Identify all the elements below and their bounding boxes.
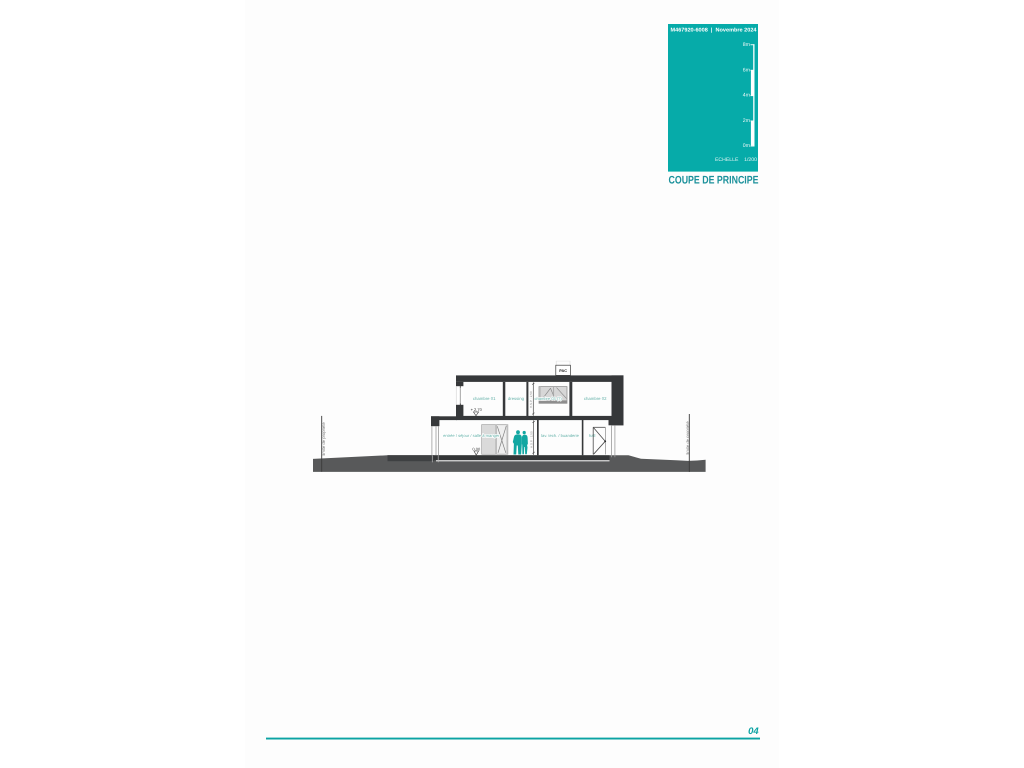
svg-text:2m: 2m (743, 118, 750, 124)
svg-text:entrée / séjour / salle à mang: entrée / séjour / salle à manger (443, 433, 500, 438)
svg-text:limite de propriété: limite de propriété (685, 421, 690, 455)
svg-text:4m: 4m (743, 93, 750, 99)
svg-text:04: 04 (748, 726, 759, 737)
svg-text:+ 2,70: + 2,70 (471, 407, 483, 412)
svg-text:PAC: PAC (559, 369, 567, 373)
svg-text:H.S.P. : 2,50: H.S.P. : 2,50 (529, 391, 533, 408)
svg-text:ECHELLE 1/200: ECHELLE 1/200 (715, 157, 757, 163)
svg-text:chambre 03 (?): chambre 03 (?) (535, 396, 563, 401)
svg-text:lav. tech. / buanderie: lav. tech. / buanderie (541, 433, 579, 438)
svg-text:8m: 8m (743, 42, 750, 48)
svg-text:hall: hall (589, 433, 595, 438)
svg-text:0m: 0m (743, 143, 750, 149)
svg-text:dressing: dressing (508, 396, 525, 401)
svg-text:M467920-6008 | Novembre 2024: M467920-6008 | Novembre 2024 (671, 27, 757, 33)
svg-text:COUPE DE PRINCIPE: COUPE DE PRINCIPE (669, 175, 759, 187)
svg-text:H.S.P. : 2,50: H.S.P. : 2,50 (530, 431, 534, 448)
svg-text:chambre 01: chambre 01 (473, 396, 496, 401)
svg-text:0,00: 0,00 (472, 446, 481, 451)
svg-text:chambre 02: chambre 02 (584, 396, 607, 401)
svg-text:6m: 6m (743, 67, 750, 73)
svg-text:limite de propriété: limite de propriété (321, 422, 326, 456)
